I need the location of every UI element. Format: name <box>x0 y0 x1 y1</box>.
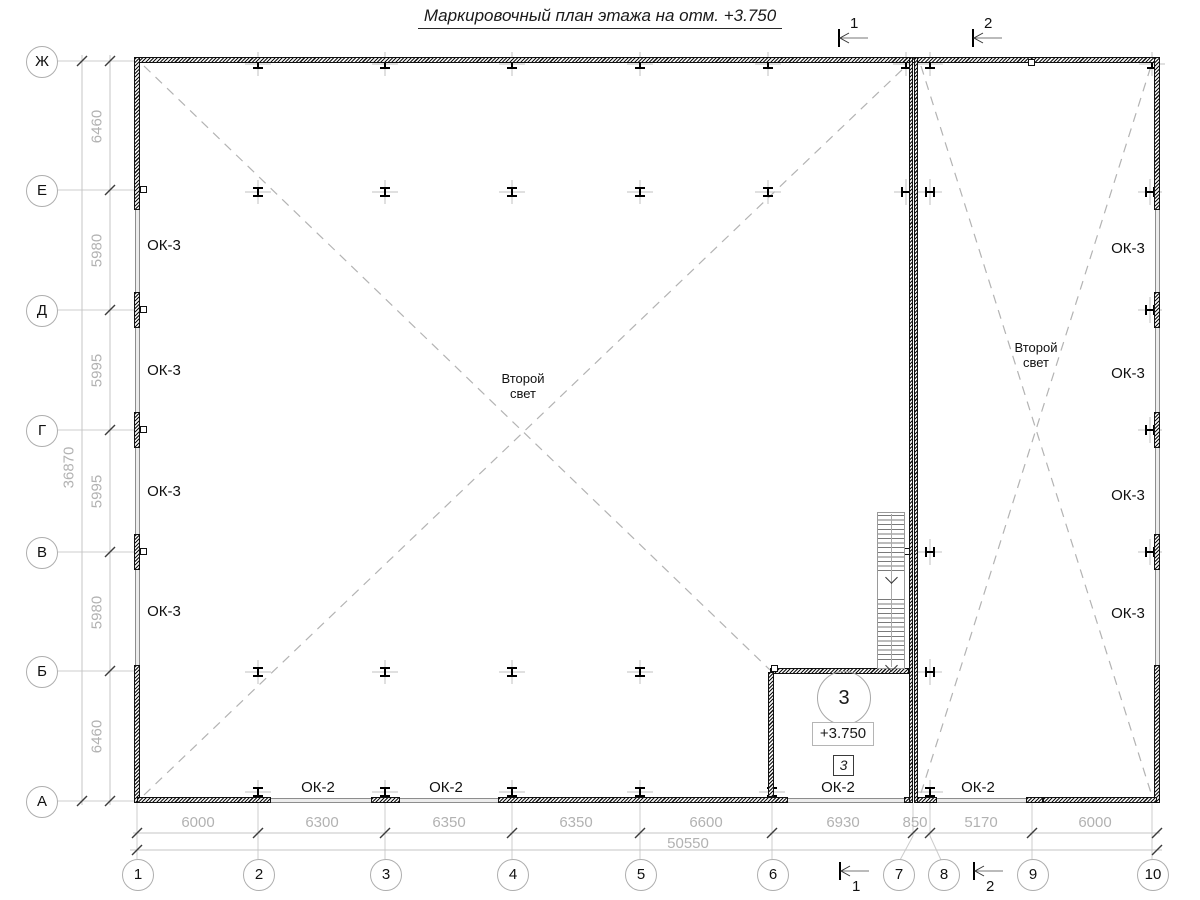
dim-left: 5995 <box>89 452 106 532</box>
wall-segment <box>917 797 937 803</box>
wall-pier <box>371 797 400 803</box>
row-bubble: В <box>26 537 58 569</box>
pier-tab <box>140 548 147 555</box>
dim-left-total: 36870 <box>61 423 78 513</box>
pier-tab <box>140 306 147 313</box>
ok3-label: ОК-3 <box>138 483 190 500</box>
ok3-label: ОК-3 <box>1102 365 1154 382</box>
row-bubble: А <box>26 786 58 818</box>
pier-tab <box>140 426 147 433</box>
row-bubble: Б <box>26 656 58 688</box>
dimension-ticks <box>77 56 1162 855</box>
window-ok3 <box>1155 570 1160 665</box>
section-number-bottom: 1 <box>852 878 860 895</box>
section-number-top: 2 <box>984 15 992 32</box>
ok3-label: ОК-3 <box>1102 605 1154 622</box>
window-ok2 <box>788 798 904 803</box>
wall-pier <box>1154 534 1160 570</box>
col-bubble: 4 <box>497 859 529 891</box>
staircase <box>877 512 905 669</box>
void-diagonal-dashed-lines <box>144 66 1151 795</box>
section-number-bottom: 2 <box>986 878 994 895</box>
window-ok3 <box>1155 210 1160 292</box>
dim-left: 5980 <box>89 573 106 653</box>
dimension-lines <box>82 55 1162 850</box>
wall-segment <box>137 797 271 803</box>
stair-axis-line <box>891 514 892 667</box>
axis-lines <box>56 61 1152 860</box>
wall-pier <box>1154 412 1160 448</box>
col-bubble: 1 <box>122 859 154 891</box>
window-ok2 <box>937 798 1026 803</box>
col-bubble: 5 <box>625 859 657 891</box>
section-number-top: 1 <box>850 15 858 32</box>
row-bubble: Д <box>26 295 58 327</box>
pier-tab <box>140 186 147 193</box>
col-bubble: 8 <box>928 859 960 891</box>
dim-bottom: 6600 <box>666 814 746 831</box>
wall-pier <box>1154 292 1160 328</box>
dim-bottom: 850 <box>893 814 937 831</box>
dim-left: 6460 <box>89 697 106 777</box>
col-bubble: 3 <box>370 859 402 891</box>
linework-layer <box>0 0 1200 900</box>
void-label: Второйсвет <box>483 371 563 401</box>
dim-left: 6460 <box>89 87 106 167</box>
window-ok3 <box>1155 328 1160 412</box>
dim-bottom-total: 50550 <box>643 835 733 852</box>
floor-plan-drawing: Маркировочный план этажа на отм. +3.750 <box>0 0 1200 900</box>
wall-segment <box>904 797 910 803</box>
dim-bottom: 6300 <box>282 814 362 831</box>
dim-bottom: 6350 <box>536 814 616 831</box>
col-bubble: 6 <box>757 859 789 891</box>
ok3-label: ОК-3 <box>138 237 190 254</box>
wall-segment <box>1154 665 1160 803</box>
dim-left: 5995 <box>89 331 106 411</box>
section-cut-arrows <box>839 29 1003 880</box>
wall-segment <box>498 797 788 803</box>
dim-bottom: 5170 <box>949 814 1013 831</box>
window-ok3 <box>1155 448 1160 534</box>
ok3-label: ОК-3 <box>138 362 190 379</box>
dim-bottom: 6350 <box>409 814 489 831</box>
column-marks <box>245 52 1165 804</box>
col-bubble: 2 <box>243 859 275 891</box>
dim-left: 5980 <box>89 211 106 291</box>
window-ok2 <box>271 798 371 803</box>
ok3-label: ОК-3 <box>1102 487 1154 504</box>
ok3-label: ОК-3 <box>1102 240 1154 257</box>
wall-segment <box>137 57 1157 63</box>
row-bubble: Ж <box>26 46 58 78</box>
dim-bottom: 6000 <box>158 814 238 831</box>
col-bubble: 9 <box>1017 859 1049 891</box>
room-type-tag: 3 <box>833 755 854 776</box>
pier-tab <box>1028 59 1035 66</box>
col-bubble: 7 <box>883 859 915 891</box>
dim-bottom: 6000 <box>1055 814 1135 831</box>
void-label: Второйсвет <box>996 340 1076 370</box>
row-bubble: Г <box>26 415 58 447</box>
ok2-label: ОК-2 <box>292 779 344 796</box>
wall-pier <box>1026 797 1043 803</box>
window-ok2 <box>400 798 498 803</box>
wall-segment <box>1043 797 1157 803</box>
drawing-title: Маркировочный план этажа на отм. +3.750 <box>340 6 860 29</box>
wall-segment <box>134 665 140 803</box>
ok3-label: ОК-3 <box>138 603 190 620</box>
pier-tab <box>771 665 778 672</box>
room-number-bubble: 3 <box>817 671 871 725</box>
ok2-label: ОК-2 <box>952 779 1004 796</box>
ok2-label: ОК-2 <box>420 779 472 796</box>
wall-segment <box>1154 57 1160 210</box>
wall-segment <box>914 57 918 803</box>
col-bubble: 10 <box>1137 859 1169 891</box>
partition-wall <box>768 672 774 797</box>
ok2-label: ОК-2 <box>812 779 864 796</box>
wall-segment <box>909 57 913 803</box>
row-bubble: Е <box>26 175 58 207</box>
elevation-tag: +3.750 <box>812 722 874 746</box>
dim-bottom: 6930 <box>803 814 883 831</box>
